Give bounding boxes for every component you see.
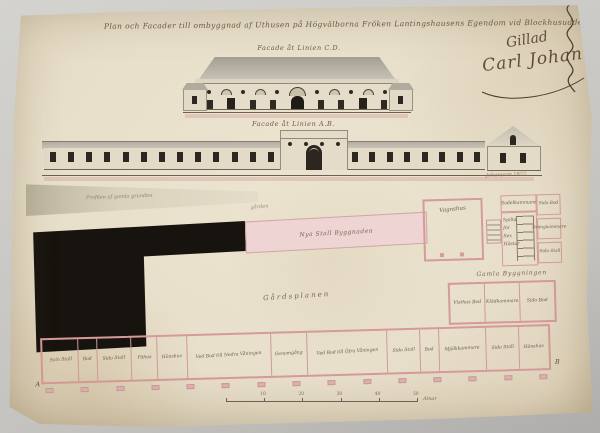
- lunette-window: [221, 89, 232, 95]
- scale-tick: [226, 392, 227, 402]
- window-opening: [50, 152, 56, 162]
- paper-sheet: Plan och Facader till ombyggnad af Uthus…: [0, 0, 600, 433]
- room-label: Hönshus: [161, 354, 184, 361]
- porch-post: [504, 375, 512, 380]
- scale-tick-label: 40: [375, 392, 381, 397]
- stable-right-rooms: Sido BodDrängkammareSido Stall: [536, 194, 562, 264]
- window-opening: [207, 100, 213, 109]
- plan-room: Sido Bod: [520, 282, 555, 321]
- window-opening: [195, 152, 201, 162]
- room-label: Sido Stall: [539, 250, 560, 255]
- scale-ticks: 1020304050: [226, 392, 418, 402]
- window-opening: [250, 100, 256, 109]
- post-pier: [440, 253, 444, 257]
- oculus-window: [383, 90, 387, 94]
- new-building-label: Nya Stall Byggnaden: [299, 227, 373, 238]
- room-sadelkammare: Sadelkammare: [500, 194, 536, 212]
- old-building-caption: Gamla Byggningen: [476, 269, 547, 278]
- window-opening: [318, 100, 324, 109]
- section-letter-a: A: [35, 380, 40, 388]
- oculus-window: [207, 90, 211, 94]
- room-label: Drängkammare: [532, 226, 566, 232]
- porch-post: [257, 382, 265, 387]
- oculus-window: [304, 142, 308, 146]
- window-opening: [68, 152, 74, 162]
- arched-window: [510, 135, 516, 145]
- room-label: Ved Bod till Öfra Våningen: [315, 348, 379, 357]
- lunette-window: [329, 89, 340, 95]
- plan-room: Sido Stall: [486, 327, 520, 370]
- window-opening: [270, 100, 276, 109]
- window-row-left: [50, 152, 274, 164]
- center-pavilion: [280, 130, 348, 170]
- room-label: Sadelkammare: [501, 200, 536, 206]
- post-pier: [460, 252, 464, 256]
- room-label: Sido Stall: [102, 356, 127, 363]
- lunette-window: [255, 89, 266, 95]
- door-window-row: [207, 96, 387, 109]
- window-opening: [439, 152, 445, 162]
- window-opening: [250, 152, 256, 162]
- window-opening: [268, 152, 274, 162]
- window-opening: [213, 152, 219, 162]
- store-rooms-block: Visthus BodKlädkammareSido Bod: [448, 280, 557, 325]
- center-door: [291, 96, 304, 109]
- window-opening: [404, 152, 410, 162]
- oculus-window: [275, 90, 279, 94]
- plan-room: Visthus Bod: [450, 284, 486, 323]
- gabled-pavilion: [485, 126, 541, 169]
- plan-room: Drängkammare: [537, 218, 562, 240]
- window-opening: [192, 96, 197, 104]
- arched-gateway: [306, 145, 322, 170]
- staircase: [486, 219, 502, 243]
- window-opening: [369, 152, 375, 162]
- plan-room: Sido Bod: [536, 194, 561, 216]
- plan-room: Hönshus: [519, 326, 549, 369]
- plan-room: Fähus: [131, 337, 158, 380]
- window-opening: [177, 152, 183, 162]
- room-label: Genomgång: [274, 351, 304, 358]
- plan-room: Klädkammare: [485, 283, 521, 322]
- window-opening: [520, 153, 526, 163]
- scale-tick: 30: [341, 392, 342, 402]
- oculus-window: [315, 90, 319, 94]
- porch-post: [81, 387, 89, 392]
- room-label: Ved Bod till Nedra Våningen: [195, 351, 263, 361]
- window-opening: [352, 152, 358, 162]
- room-label: Sido Bod: [539, 202, 559, 207]
- plan-room: Sido Stall: [538, 242, 563, 264]
- plan-room: Ved Bod till Nedra Våningen: [187, 334, 272, 378]
- room-vagnshus: Vagnshus: [422, 198, 484, 262]
- plan-room: Hönshus: [157, 336, 188, 379]
- plan-room: Sido Stall: [97, 338, 133, 381]
- lunette-window: [363, 89, 374, 95]
- oculus-window: [349, 90, 353, 94]
- plan-room: Bod: [420, 329, 439, 371]
- window-opening: [474, 152, 480, 162]
- plan-room: Sido Stall: [387, 330, 422, 373]
- ground-line: [183, 112, 411, 113]
- courtyard-label: Gårdsplanen: [263, 290, 331, 302]
- cornice: [281, 138, 347, 139]
- room-label: Sido Stall: [391, 348, 416, 355]
- oculus-window: [288, 142, 292, 146]
- section-letter-b: B: [555, 358, 560, 366]
- room-label: Vagnshus: [425, 204, 481, 215]
- room-label: Svin Stall: [48, 357, 73, 364]
- porch-post: [151, 385, 159, 390]
- scale-tick-label: 20: [298, 392, 304, 397]
- gable-wall: [487, 146, 541, 171]
- room-horse-stalls: SpiltaförSexHästar: [501, 211, 538, 266]
- ground-wash: [185, 114, 408, 118]
- porch-post: [292, 381, 300, 386]
- oculus-window: [320, 142, 324, 146]
- room-label: Klädkammare: [486, 299, 519, 305]
- window-opening: [422, 152, 428, 162]
- room-label: Sido Stall: [490, 345, 515, 352]
- ground-wash: [44, 177, 534, 181]
- room-label: Sido Bod: [527, 298, 548, 304]
- scale-tick: 10: [264, 392, 265, 402]
- plan-room: Genomgång: [271, 333, 309, 376]
- lunette-window: [289, 87, 306, 96]
- room-label: Mjölkkammare: [444, 346, 481, 354]
- oculus-window: [336, 142, 340, 146]
- scanned-drawing-photo: Plan och Facader till ombyggnad af Uthus…: [0, 0, 600, 433]
- window-opening: [232, 152, 238, 162]
- thread-squiggle: [552, 2, 582, 106]
- window-opening: [398, 96, 403, 104]
- stall-partitions: [516, 215, 535, 260]
- oculus-window: [241, 90, 245, 94]
- facade-wall: [199, 84, 395, 110]
- left-wing: [183, 89, 207, 111]
- porch-post: [469, 376, 477, 381]
- room-label: Bod: [424, 347, 435, 353]
- scale-tick-label: 30: [337, 392, 343, 397]
- door-opening: [227, 98, 235, 109]
- ground-plan: Nya Stall Byggnaden gården Vagnshus Sade…: [30, 190, 569, 401]
- room-label: Visthus Bod: [453, 300, 481, 306]
- scale-tick-label: 50: [413, 392, 419, 397]
- porch-post: [187, 384, 195, 389]
- plan-room: Ved Bod till Öfra Våningen: [307, 331, 388, 375]
- frieze-window-row: [207, 87, 387, 96]
- door-opening: [359, 98, 367, 109]
- plan-room: Bod: [79, 339, 98, 381]
- window-opening: [141, 152, 147, 162]
- window-opening: [159, 152, 165, 162]
- window-opening: [387, 152, 393, 162]
- window-opening: [500, 153, 506, 163]
- porch-post: [433, 377, 441, 382]
- porch-post: [363, 379, 371, 384]
- porch-post: [398, 378, 406, 383]
- drawing-title: Plan och Facader till ombyggnad af Uthus…: [104, 18, 504, 30]
- porch-post: [116, 386, 124, 391]
- room-label: Bod: [82, 357, 93, 363]
- scale-bar: 1020304050 Alnar: [226, 392, 440, 408]
- scale-tick: 40: [379, 392, 380, 402]
- room-label: Fähus: [136, 355, 152, 361]
- scale-tick-label: 10: [260, 392, 266, 397]
- porch-post: [222, 383, 230, 388]
- porch-post: [46, 388, 54, 393]
- ground-line: [42, 175, 542, 176]
- window-opening: [457, 152, 463, 162]
- room-label: Hönshus: [523, 344, 546, 351]
- facade-ab-drawing: [42, 122, 542, 184]
- plan-room: Mjölkkammare: [439, 328, 487, 371]
- sketch-note: Profilen af gamla grunden: [86, 193, 153, 201]
- plan-room: Svin Stall: [42, 339, 80, 382]
- yard-note: gården: [250, 203, 268, 210]
- window-opening: [123, 152, 129, 162]
- porch-post: [328, 380, 336, 385]
- window-opening: [104, 152, 110, 162]
- window-opening: [381, 100, 387, 109]
- facade-cd-drawing: [183, 57, 411, 121]
- scale-tick: 50: [417, 392, 418, 402]
- scale-unit: Alnar: [423, 396, 437, 402]
- new-building-wash: Nya Stall Byggnaden: [245, 212, 428, 254]
- right-wing: [389, 89, 413, 111]
- hipped-roof: [199, 57, 395, 79]
- porch-post: [539, 374, 547, 379]
- window-opening: [86, 152, 92, 162]
- window-row-right: [352, 152, 480, 164]
- facade-cd-caption: Facade åt Linien C.D.: [238, 44, 360, 52]
- window-opening: [338, 100, 344, 109]
- scale-tick: 20: [302, 392, 303, 402]
